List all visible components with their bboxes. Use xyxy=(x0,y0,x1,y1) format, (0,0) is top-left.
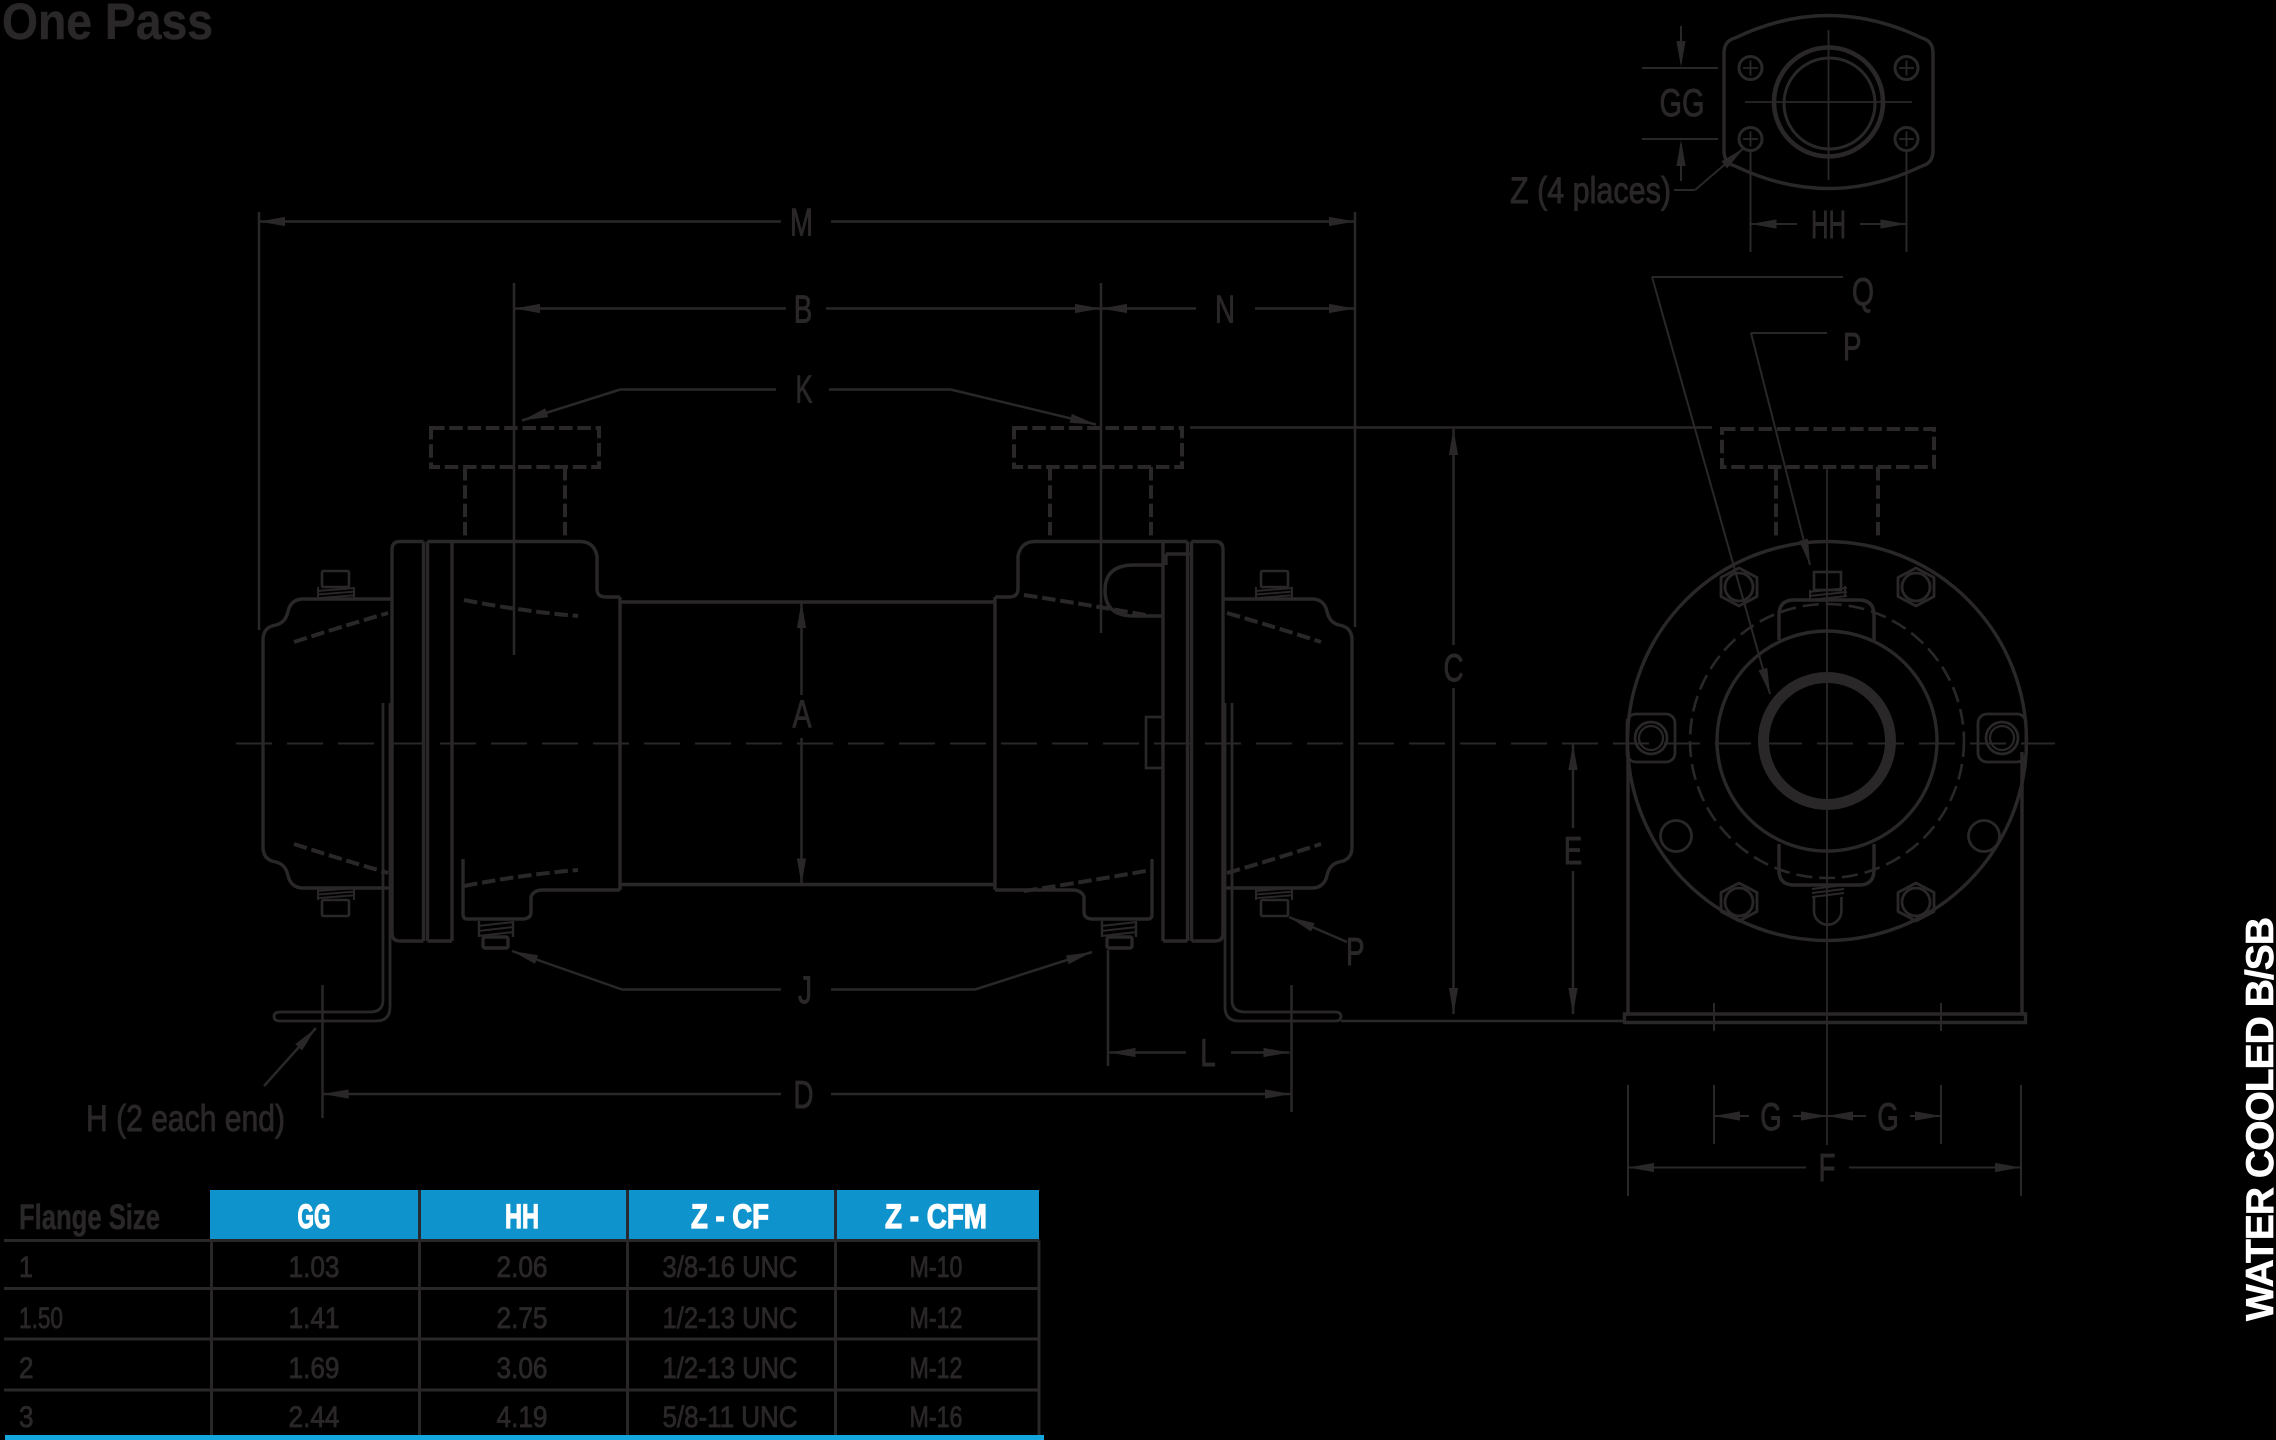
svg-text:M-10: M-10 xyxy=(910,1251,963,1284)
svg-text:G: G xyxy=(1760,1096,1782,1139)
svg-text:M-12: M-12 xyxy=(910,1352,963,1385)
svg-text:GG: GG xyxy=(298,1198,331,1236)
svg-text:Q: Q xyxy=(1852,271,1874,314)
svg-text:1: 1 xyxy=(19,1251,33,1284)
svg-text:A: A xyxy=(793,694,812,737)
svg-text:2: 2 xyxy=(19,1352,34,1385)
svg-text:3.06: 3.06 xyxy=(497,1352,548,1385)
svg-text:P: P xyxy=(1843,326,1862,369)
svg-text:WATER COOLED B/SB: WATER COOLED B/SB xyxy=(2239,917,2276,1321)
svg-text:Flange Size: Flange Size xyxy=(19,1198,160,1237)
svg-text:2.75: 2.75 xyxy=(497,1302,548,1335)
svg-text:M-16: M-16 xyxy=(910,1401,963,1434)
svg-text:1/2-13 UNC: 1/2-13 UNC xyxy=(663,1352,798,1385)
svg-text:GG: GG xyxy=(1660,82,1705,125)
svg-text:M-12: M-12 xyxy=(910,1302,963,1335)
svg-text:G: G xyxy=(1877,1096,1899,1139)
svg-text:D: D xyxy=(794,1074,814,1117)
svg-text:1/2-13 UNC: 1/2-13 UNC xyxy=(663,1302,798,1335)
svg-text:H (2 each end): H (2 each end) xyxy=(86,1098,285,1139)
svg-text:E: E xyxy=(1564,830,1583,873)
svg-text:1.50: 1.50 xyxy=(19,1302,63,1335)
svg-text:3: 3 xyxy=(19,1401,34,1434)
svg-text:M: M xyxy=(790,202,813,245)
svg-text:1.03: 1.03 xyxy=(289,1251,340,1284)
svg-text:HH: HH xyxy=(1811,204,1846,247)
svg-text:Z - CF: Z - CF xyxy=(691,1198,769,1236)
svg-text:HH: HH xyxy=(505,1198,539,1236)
svg-text:C: C xyxy=(1444,647,1464,690)
svg-text:5/8-11 UNC: 5/8-11 UNC xyxy=(663,1401,798,1434)
svg-text:2.44: 2.44 xyxy=(289,1401,340,1434)
svg-text:3/8-16 UNC: 3/8-16 UNC xyxy=(663,1251,798,1284)
svg-text:N: N xyxy=(1215,289,1235,332)
svg-text:P: P xyxy=(1346,931,1365,974)
svg-text:1.69: 1.69 xyxy=(289,1352,340,1385)
svg-text:J: J xyxy=(798,969,812,1012)
svg-text:2.06: 2.06 xyxy=(497,1251,548,1284)
svg-text:1.41: 1.41 xyxy=(289,1302,340,1335)
svg-text:4.19: 4.19 xyxy=(497,1401,548,1434)
svg-text:Z - CFM: Z - CFM xyxy=(885,1198,987,1236)
svg-text:F: F xyxy=(1819,1147,1836,1190)
svg-text:B: B xyxy=(794,289,813,332)
svg-text:K: K xyxy=(796,369,813,412)
svg-text:L: L xyxy=(1200,1032,1216,1075)
svg-text:One Pass: One Pass xyxy=(2,0,213,50)
svg-text:Z (4 places): Z (4 places) xyxy=(1510,170,1671,211)
